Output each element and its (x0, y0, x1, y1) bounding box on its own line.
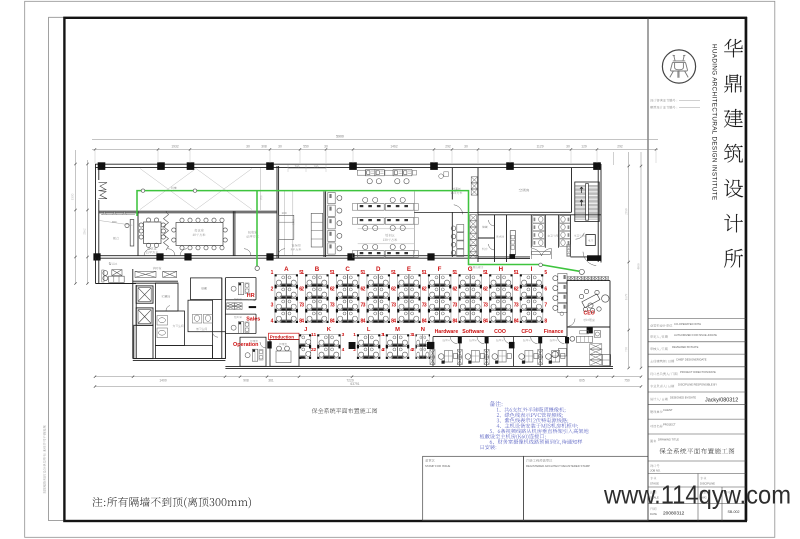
svg-text:4: 4 (424, 319, 427, 325)
svg-text:SB-002: SB-002 (728, 510, 740, 514)
svg-text:1: 1 (424, 270, 427, 276)
svg-text:CHIEF DESIGNER/DATE: CHIEF DESIGNER/DATE (676, 357, 707, 361)
svg-text:1129: 1129 (536, 144, 543, 148)
svg-text:1: 1 (393, 270, 396, 276)
svg-text:4: 4 (342, 347, 345, 353)
svg-text:REVIEWED BY/DATE: REVIEWED BY/DATE (672, 345, 699, 349)
svg-text:DATE: DATE (650, 512, 657, 516)
svg-text:4: 4 (332, 319, 335, 325)
svg-text:5900: 5900 (336, 135, 344, 139)
svg-text:PROJECT: PROJECT (663, 422, 676, 426)
svg-text:D: D (376, 266, 381, 273)
svg-text:www.114qyw.com: www.114qyw.com (603, 480, 791, 510)
svg-text:3: 3 (363, 302, 366, 308)
svg-text:3: 3 (516, 302, 519, 308)
svg-text:AUTHORIZED FOR ISSUE &/DATE: AUTHORIZED FOR ISSUE &/DATE (674, 333, 717, 337)
svg-text:100: 100 (281, 211, 286, 215)
svg-text:1: 1 (271, 270, 274, 276)
svg-text:DISCIPLINE RESPONSIBLE BY: DISCIPLINE RESPONSIBLE BY (678, 382, 717, 386)
svg-text:605: 605 (579, 378, 585, 382)
svg-text:G: G (468, 266, 473, 273)
svg-text:K: K (327, 327, 332, 333)
svg-text:2: 2 (332, 286, 335, 292)
svg-text:2: 2 (424, 286, 427, 292)
svg-text:1: 1 (412, 332, 415, 338)
svg-text:8: 8 (544, 319, 547, 325)
svg-text:750: 750 (624, 378, 630, 382)
svg-text:Software: Software (462, 329, 484, 335)
svg-text:361: 361 (268, 378, 274, 382)
svg-text:1: 1 (332, 270, 335, 276)
svg-text:CO-OPERATED WITH: CO-OPERATED WITH (674, 322, 701, 326)
svg-text:7: 7 (544, 302, 547, 308)
svg-text:Sales: Sales (246, 317, 260, 323)
svg-text:CFO: CFO (521, 329, 532, 335)
svg-text:30: 30 (566, 144, 570, 148)
svg-text:I: I (531, 266, 533, 273)
svg-text:129: 129 (581, 144, 587, 148)
svg-text:F: F (438, 266, 442, 273)
svg-text:3: 3 (424, 302, 427, 308)
svg-text:30: 30 (324, 144, 328, 148)
svg-text:2: 2 (455, 286, 458, 292)
svg-text:550: 550 (303, 144, 309, 148)
svg-text:30: 30 (464, 144, 468, 148)
svg-text:4: 4 (455, 319, 458, 325)
svg-text:CLIENT: CLIENT (663, 408, 673, 412)
svg-text:DRAWING TITLE: DRAWING TITLE (658, 437, 679, 441)
svg-text:3: 3 (271, 302, 274, 308)
svg-text:30: 30 (278, 144, 282, 148)
svg-text:HUADING ARCHITECTURAL DESIGN I: HUADING ARCHITECTURAL DESIGN INSTITUTE (711, 44, 718, 201)
svg-text:20080312: 20080312 (663, 511, 685, 517)
svg-text:1: 1 (516, 270, 519, 276)
svg-text:B: B (315, 266, 320, 273)
svg-text:4: 4 (301, 319, 304, 325)
svg-text:N: N (421, 327, 425, 333)
svg-text:A: A (284, 266, 289, 273)
svg-text:4: 4 (516, 319, 519, 325)
svg-text:Hardware: Hardware (435, 329, 459, 335)
svg-text:Production: Production (270, 334, 294, 339)
svg-text:L: L (367, 327, 371, 333)
svg-text:4: 4 (363, 319, 366, 325)
svg-text:3: 3 (393, 302, 396, 308)
svg-text:650: 650 (112, 220, 117, 224)
svg-text:2: 2 (516, 286, 519, 292)
svg-text:3: 3 (301, 302, 304, 308)
svg-text:2: 2 (363, 286, 366, 292)
svg-text:Jacky/080312: Jacky/080312 (705, 398, 738, 404)
svg-text:STAMP FOR ISSUE: STAMP FOR ISSUE (425, 464, 450, 468)
svg-text:292: 292 (617, 144, 623, 148)
svg-text:2: 2 (382, 347, 385, 353)
svg-text:1: 1 (485, 270, 488, 276)
svg-text:1400: 1400 (159, 378, 167, 382)
svg-text:2: 2 (412, 347, 415, 353)
svg-text:1932: 1932 (171, 144, 179, 148)
svg-text:5: 5 (544, 270, 547, 276)
svg-text:1: 1 (301, 270, 304, 276)
svg-text:1: 1 (363, 270, 366, 276)
svg-text:DESIGNED BY/DATE: DESIGNED BY/DATE (670, 395, 696, 399)
svg-text:Operation: Operation (233, 342, 258, 348)
svg-text:4: 4 (485, 319, 488, 325)
svg-text:2: 2 (314, 347, 317, 353)
svg-text:H: H (499, 266, 504, 273)
svg-text:M: M (395, 327, 400, 333)
svg-text:1462: 1462 (390, 144, 398, 148)
svg-text:4: 4 (271, 319, 274, 325)
svg-text:308: 308 (261, 144, 267, 148)
svg-text:3: 3 (332, 302, 335, 308)
svg-text:3: 3 (485, 302, 488, 308)
svg-text:PROJECT DIRECTION/DATE: PROJECT DIRECTION/DATE (680, 370, 716, 374)
svg-text:COO: COO (494, 329, 506, 335)
svg-text:4: 4 (393, 319, 396, 325)
svg-text:100: 100 (314, 164, 319, 168)
svg-text:3: 3 (342, 332, 345, 338)
svg-text:JOB NO.: JOB NO. (650, 469, 661, 473)
svg-text:CEO: CEO (584, 311, 595, 317)
svg-text:J: J (304, 327, 307, 333)
svg-text:HR: HR (247, 293, 255, 299)
svg-text:63791: 63791 (350, 382, 359, 386)
svg-text:2: 2 (485, 286, 488, 292)
svg-text:292: 292 (445, 144, 451, 148)
svg-text:6: 6 (544, 286, 547, 292)
svg-text:REGISTERED ARCHITECT REGISTERE: REGISTERED ARCHITECT REGISTERED STAMP (526, 464, 590, 468)
svg-text:1: 1 (314, 332, 317, 338)
svg-text:30: 30 (246, 144, 250, 148)
svg-text:C: C (345, 266, 350, 273)
svg-text:Finance: Finance (544, 329, 564, 335)
svg-text:700: 700 (295, 164, 300, 168)
svg-text:2: 2 (393, 286, 396, 292)
svg-text:E: E (407, 266, 411, 273)
svg-text:3: 3 (455, 302, 458, 308)
svg-text:1: 1 (382, 332, 385, 338)
svg-text:1: 1 (455, 270, 458, 276)
svg-text:908: 908 (243, 378, 249, 382)
svg-text:1: 1 (353, 332, 356, 338)
svg-text:2: 2 (271, 286, 274, 292)
svg-text:2: 2 (301, 286, 304, 292)
